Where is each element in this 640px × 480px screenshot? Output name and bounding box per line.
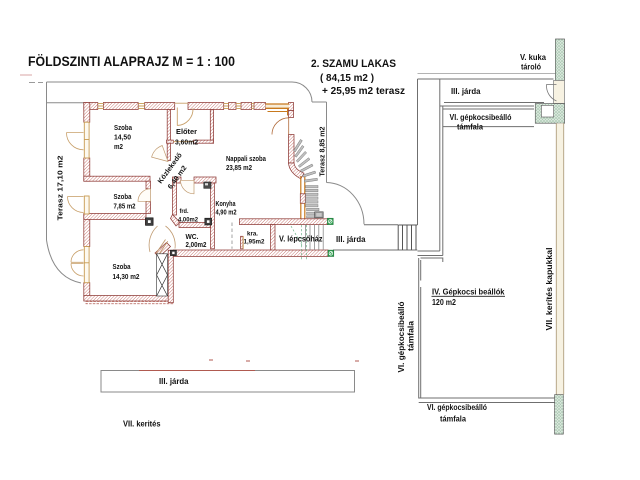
svg-text:WC.: WC. <box>186 234 199 241</box>
svg-text:támfala: támfala <box>440 414 466 424</box>
svg-text:IV. Gépkocsi beállók: IV. Gépkocsi beállók <box>432 287 505 297</box>
svg-text:4,90 m2: 4,90 m2 <box>216 210 237 217</box>
svg-text:+ 25,95 m2 terasz: + 25,95 m2 terasz <box>322 85 405 97</box>
svg-text:III. járda: III. járda <box>336 235 366 244</box>
svg-text:( 84,15 m2 ): ( 84,15 m2 ) <box>320 72 374 84</box>
svg-text:3,60m2: 3,60m2 <box>175 140 198 147</box>
svg-text:Előter: Előter <box>176 129 197 136</box>
svg-text:Szoba: Szoba <box>113 264 131 271</box>
svg-text:m2: m2 <box>114 144 123 151</box>
svg-text:2. SZAMU LAKAS: 2. SZAMU LAKAS <box>311 58 396 70</box>
svg-text:2,00m2: 2,00m2 <box>186 242 207 249</box>
svg-text:14,30 m2: 14,30 m2 <box>113 274 140 281</box>
svg-text:FÖLDSZINTI ALAPRAJZ M = 1 :: FÖLDSZINTI ALAPRAJZ M = 1 : 100 <box>28 53 235 69</box>
svg-text:tároló: tároló <box>521 63 541 72</box>
svg-text:Terasz 17,10 m2: Terasz 17,10 m2 <box>58 155 65 220</box>
svg-text:frd.: frd. <box>180 208 189 215</box>
svg-text:V. kuka: V. kuka <box>520 53 547 62</box>
svg-text:III. járda: III. járda <box>159 377 189 386</box>
svg-text:VII. kerités: VII. kerités <box>123 420 161 429</box>
svg-text:támfala: támfala <box>457 123 484 132</box>
svg-text:Terasz 8,85 m2: Terasz 8,85 m2 <box>320 126 327 176</box>
svg-text:23,85 m2: 23,85 m2 <box>226 165 252 172</box>
svg-text:támfala: támfala <box>407 320 416 351</box>
svg-text:7,85 m2: 7,85 m2 <box>114 204 136 211</box>
svg-text:Konyha: Konyha <box>216 201 236 208</box>
svg-text:14,50: 14,50 <box>114 135 131 142</box>
svg-text:VII. kerítés kapukkal: VII. kerítés kapukkal <box>545 248 554 331</box>
svg-text:kra.: kra. <box>247 231 258 238</box>
svg-text:Nappali szoba: Nappali szoba <box>226 156 266 163</box>
svg-text:Szoba: Szoba <box>114 125 132 132</box>
svg-text:1,95m2: 1,95m2 <box>244 239 265 246</box>
svg-text:VI. gépkocsibeálló: VI. gépkocsibeálló <box>427 402 487 412</box>
svg-text:III. járda: III. járda <box>451 87 481 96</box>
svg-text:4,00m2: 4,00m2 <box>178 217 198 224</box>
svg-text:VI. gépkocsibeálló: VI. gépkocsibeálló <box>450 113 512 122</box>
svg-text:Szoba: Szoba <box>114 194 132 201</box>
svg-text:VI. gépkocsibeálló: VI. gépkocsibeálló <box>397 301 406 372</box>
svg-text:120 m2: 120 m2 <box>432 298 456 307</box>
svg-text:V. lépcsőház: V. lépcsőház <box>279 235 323 244</box>
